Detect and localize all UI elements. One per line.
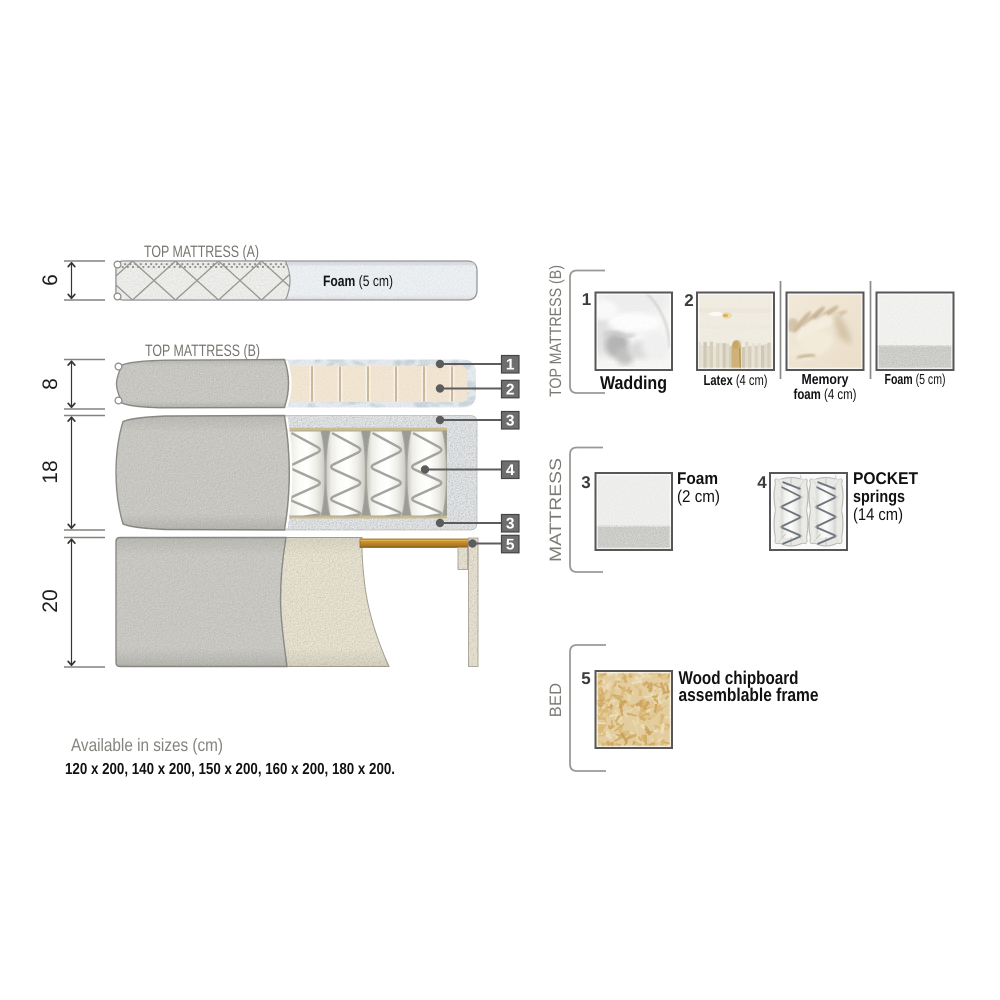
svg-text:1: 1 xyxy=(582,290,591,309)
svg-text:(2 cm): (2 cm) xyxy=(677,487,720,506)
svg-text:Latex (4 cm): Latex (4 cm) xyxy=(704,373,768,389)
svg-text:Memory: Memory xyxy=(802,372,849,388)
svg-text:3: 3 xyxy=(581,473,590,492)
svg-text:TOP MATTRESS (A): TOP MATTRESS (A) xyxy=(144,243,259,261)
svg-text:5: 5 xyxy=(581,669,590,688)
svg-text:2: 2 xyxy=(506,381,515,398)
svg-text:Wadding: Wadding xyxy=(600,372,667,393)
svg-text:1: 1 xyxy=(506,357,515,374)
svg-text:assemblable frame: assemblable frame xyxy=(679,684,819,705)
svg-text:6: 6 xyxy=(39,274,62,286)
svg-text:POCKET: POCKET xyxy=(853,469,919,488)
svg-text:3: 3 xyxy=(506,413,515,430)
svg-text:2: 2 xyxy=(684,291,693,310)
svg-text:BED: BED xyxy=(547,683,565,718)
svg-text:18: 18 xyxy=(39,460,62,483)
svg-text:TOP MATTRESS (B): TOP MATTRESS (B) xyxy=(145,342,260,360)
svg-text:Foam: Foam xyxy=(677,469,718,488)
svg-text:5: 5 xyxy=(506,536,515,553)
svg-text:foam (4 cm): foam (4 cm) xyxy=(794,387,857,403)
svg-text:Available in sizes (cm): Available in sizes (cm) xyxy=(71,735,223,755)
svg-text:(14 cm): (14 cm) xyxy=(853,505,903,524)
svg-text:20: 20 xyxy=(39,589,62,612)
svg-text:springs: springs xyxy=(853,487,905,506)
svg-text:4: 4 xyxy=(506,462,515,479)
svg-text:3: 3 xyxy=(506,516,515,533)
svg-text:TOP MATTRESS (B): TOP MATTRESS (B) xyxy=(547,265,565,397)
svg-text:Foam (5 cm): Foam (5 cm) xyxy=(323,273,393,290)
svg-text:8: 8 xyxy=(39,378,62,390)
svg-text:Foam (5 cm): Foam (5 cm) xyxy=(885,372,946,388)
svg-text:MATTRESS: MATTRESS xyxy=(547,458,565,562)
svg-text:120 x 200, 140 x 200, 150 x 20: 120 x 200, 140 x 200, 150 x 200, 160 x 2… xyxy=(65,761,395,778)
svg-text:4: 4 xyxy=(757,473,767,492)
